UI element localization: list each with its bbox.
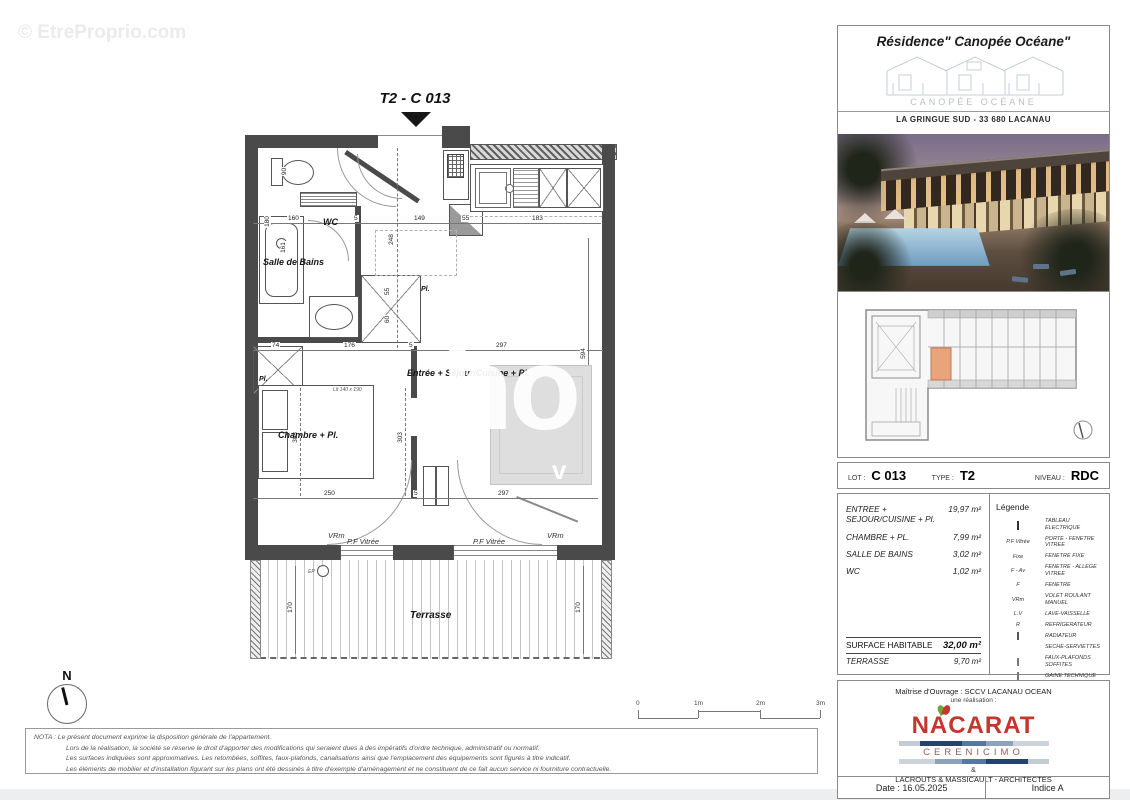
level-cell: NIVEAU : RDC xyxy=(1015,468,1099,483)
kitchen-sink xyxy=(475,168,511,208)
areas-table: ENTREE + SEJOUR/CUISINE + Pl.19,97 m² CH… xyxy=(838,494,990,674)
nacarat-leaf-icon xyxy=(938,705,950,715)
type-cell: TYPE : T2 xyxy=(932,468,1016,483)
door-leaf-1 xyxy=(423,466,436,506)
date-value: Date : 16.05.2025 xyxy=(838,777,986,798)
dim-chain-top xyxy=(253,223,601,224)
scale-tick-label: 3m xyxy=(816,700,825,707)
radiateur-icon xyxy=(1017,632,1019,640)
realisation-line: une réalisation : xyxy=(838,697,1109,704)
area-row: SALLE DE BAINS3,02 m² xyxy=(846,549,981,559)
terrace-edge-right xyxy=(601,560,612,659)
wall-top-left xyxy=(245,135,378,148)
legend-title: Légende xyxy=(996,502,1103,512)
washbasin xyxy=(315,304,353,330)
vrm-right-label: VRm xyxy=(547,531,564,540)
area-row: ENTREE + SEJOUR/CUISINE + Pl.19,97 m² xyxy=(846,504,981,525)
dim: 5 xyxy=(408,342,414,349)
vrm-left-label: VRm xyxy=(328,531,345,540)
scale-tick-label: 1m xyxy=(694,700,703,707)
dim: 250 xyxy=(323,490,336,497)
scale-bar: 0 1m 2m 3m xyxy=(628,700,826,726)
dim-line-170b xyxy=(583,566,584,654)
wall-bottom-1 xyxy=(258,545,340,560)
terrace-edge-left xyxy=(250,560,261,659)
dim: 149 xyxy=(413,215,426,222)
ep-label: EP xyxy=(308,569,315,575)
areas-legend-box: ENTREE + SEJOUR/CUISINE + Pl.19,97 m² CH… xyxy=(837,493,1110,675)
plan-sheet: © EtreProprio.com T2 - C 013 WC xyxy=(0,0,1130,800)
area-row: WC1,02 m² xyxy=(846,566,981,576)
nota-box: NOTA : Le présent document exprime la di… xyxy=(25,728,818,774)
area-row: CHAMBRE + PL.7,99 m² xyxy=(846,532,981,542)
room-label-wc: WC xyxy=(323,218,338,228)
sofa-furniture xyxy=(490,365,592,485)
nota-line: NOTA : Le présent document exprime la di… xyxy=(34,733,809,744)
pf-left-label: P.F Vitrée xyxy=(347,537,379,546)
wall-kitchen-wing xyxy=(470,144,617,160)
date-row: Date : 16.05.2025 Indice A xyxy=(838,776,1109,798)
north-label: N xyxy=(62,668,71,683)
dim-line-303a xyxy=(300,388,301,496)
scale-tick-label: 0 xyxy=(636,700,640,707)
window-living xyxy=(453,545,559,560)
legend: Légende TABLEAU ELECTRIQUE P.F VitréePOR… xyxy=(990,494,1109,674)
dim: 297 xyxy=(495,342,508,349)
dim: 74 xyxy=(271,342,280,349)
wall-bottom-3 xyxy=(557,545,602,560)
plan-title: T2 - C 013 xyxy=(325,90,505,107)
faux-plafonds-icon xyxy=(1017,658,1019,666)
wc-radiator xyxy=(300,192,357,207)
site-plan xyxy=(838,291,1109,458)
level-value: RDC xyxy=(1071,468,1099,483)
highlighted-unit xyxy=(931,348,951,380)
type-value: T2 xyxy=(960,468,975,483)
dim: 176 xyxy=(343,342,356,349)
lot-value: C 013 xyxy=(871,468,906,483)
nota-line: Les surfaces indiquées sont approximativ… xyxy=(34,754,809,765)
dim: 594 xyxy=(580,347,587,360)
wall-bottom-2 xyxy=(393,545,453,560)
dim-line-170a xyxy=(295,566,296,654)
wall-bedroom-bottom xyxy=(411,436,417,498)
dim: 55 xyxy=(384,287,391,296)
sidebar-header-box: Résidence" Canopée Océane" CANOPÉE OCÉAN… xyxy=(837,25,1110,458)
closet-left-label: Pl. xyxy=(259,376,268,384)
room-label-terrace: Terrasse xyxy=(410,610,451,621)
realization-box: Maîtrise d'Ouvrage : SCCV LACANAU OCEAN … xyxy=(837,680,1110,799)
dim: 183 xyxy=(531,215,544,222)
window-bedroom xyxy=(340,545,395,560)
residence-logo-caption: CANOPÉE OCÉANE xyxy=(838,97,1109,107)
dim: 303 xyxy=(397,431,404,444)
ep-symbol xyxy=(317,565,329,577)
dim-chain-mid xyxy=(253,350,603,351)
tableau-electrique-icon xyxy=(447,154,464,178)
dim: 55 xyxy=(461,215,470,222)
terrasse-row: TERRASSE9,70 m² xyxy=(846,654,981,666)
scale-tick-label: 2m xyxy=(756,700,765,707)
dim: 160 xyxy=(287,215,300,222)
lot-info-row: LOT : C 013 TYPE : T2 NIVEAU : RDC xyxy=(837,462,1110,489)
dim: 161 xyxy=(280,241,287,254)
room-label-bath: Salle de Bains xyxy=(263,258,324,268)
kitchen-hob xyxy=(513,168,539,208)
watermark-fragment: v xyxy=(552,455,566,486)
residence-photo xyxy=(838,134,1109,291)
residence-address: LA GRINGUE SUD - 33 680 LACANAU xyxy=(838,111,1109,127)
type-label: TYPE : xyxy=(932,475,954,482)
dim: 5 xyxy=(413,490,419,497)
lot-label: LOT : xyxy=(848,475,865,482)
entry-opening xyxy=(378,135,442,149)
room-label-living: Entrée + Séjour/Cuisine + Pl. xyxy=(407,369,530,379)
closet-center xyxy=(361,275,421,343)
dim: 5 xyxy=(353,215,359,222)
etreproprio-watermark: © EtreProprio.com xyxy=(18,22,186,44)
dim: 90 xyxy=(281,167,288,176)
floor-plan: T2 - C 013 WC Salle de Bains xyxy=(25,88,635,694)
pillow-1 xyxy=(262,390,288,430)
dim: 297 xyxy=(497,490,510,497)
wall-entry-right xyxy=(442,126,470,148)
cerenicimo-logo: CERENICIMO xyxy=(899,741,1049,764)
residence-logo-sketch xyxy=(879,51,1069,101)
dim-line-303b xyxy=(405,388,406,496)
entrance-marker-icon xyxy=(401,112,431,127)
surface-habitable-row: SURFACE HABITABLE32,00 m² xyxy=(846,637,981,654)
ampersand: & xyxy=(838,767,1109,774)
dim: 170 xyxy=(575,601,582,614)
nota-line: Les éléments de mobilier et d'installati… xyxy=(34,765,809,776)
dim: 170 xyxy=(287,601,294,614)
pf-right-label: P.F Vitrée xyxy=(473,537,505,546)
dishwasher-box xyxy=(539,168,567,208)
dim-line-entry xyxy=(397,148,398,348)
north-arrow: N xyxy=(35,668,99,734)
dim: 180 xyxy=(264,215,271,228)
fridge-box xyxy=(567,168,601,208)
tableau-electrique-icon xyxy=(1017,521,1019,530)
lot-cell: LOT : C 013 xyxy=(848,468,932,483)
dim: 60 xyxy=(384,315,391,324)
dim: 248 xyxy=(388,233,395,246)
nota-line: Lors de la réalisation, la société se ré… xyxy=(34,744,809,755)
door-leaf-2 xyxy=(436,466,449,506)
room-label-bedroom: Chambre + Pl. xyxy=(278,431,338,441)
bed-size-label: Lit 140 x 190 xyxy=(333,387,362,393)
closet-center-label: Pl. xyxy=(421,286,430,294)
residence-title: Résidence" Canopée Océane" xyxy=(844,34,1103,49)
dim-chain-bottom xyxy=(253,498,598,499)
owner-line: Maîtrise d'Ouvrage : SCCV LACANAU OCEAN xyxy=(838,687,1109,696)
indice-value: Indice A xyxy=(986,777,1109,798)
level-label: NIVEAU : xyxy=(1035,475,1065,482)
nacarat-logo: NACARAT xyxy=(912,712,1036,740)
